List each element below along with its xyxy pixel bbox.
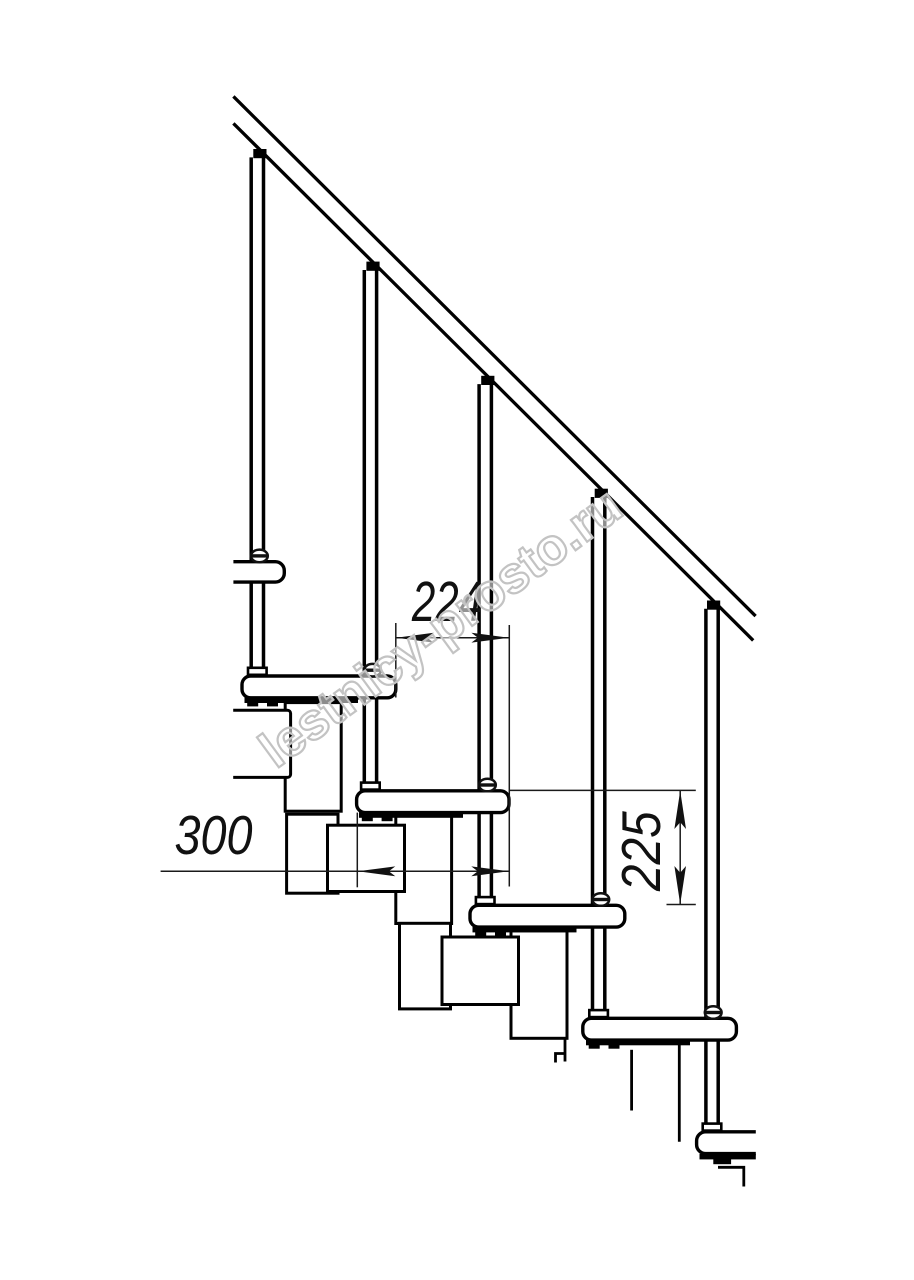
svg-text:300: 300 bbox=[175, 804, 253, 865]
svg-text:225: 225 bbox=[610, 811, 672, 892]
